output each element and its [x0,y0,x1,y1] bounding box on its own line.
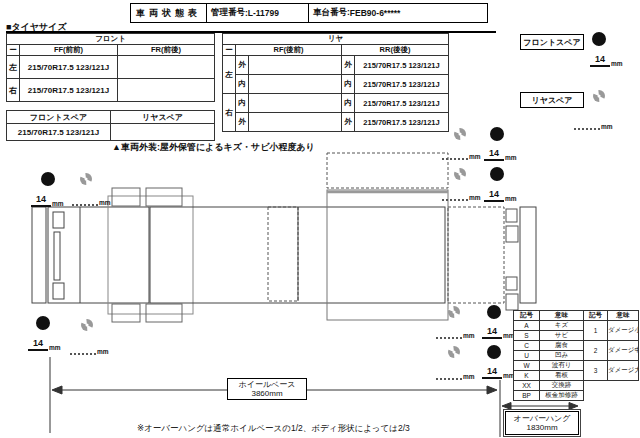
tread-depth-label-empty: mm [70,346,109,355]
tread-depth-label: 14mm [28,339,61,351]
rear-spare-tread-depth-label: mm [574,121,613,130]
wheelbase-label: ホイールベース [239,380,296,389]
legend-header: 意味 [540,311,584,321]
legend-meaning: 凹み [540,351,584,361]
tread-depth-label-empty: mm [72,197,111,206]
tire-icon-rear1-left-inner [448,306,460,318]
tire-icon-front-right-outer [41,172,55,186]
tire-icon-front-right-inner [80,173,92,185]
tread-depth-label: 14mm [482,327,515,339]
overhang-footnote: ※オーバーハングは通常ホイルベースの1/2、ボディ形状によっては2/3 [137,423,410,435]
legend-meaning: ダメージ小 [608,321,639,341]
overhang-label: オーバーハング [514,414,571,423]
tire-icon-rear1-left-outer [487,305,501,319]
tire-icon-rear2-right-inner [454,168,466,180]
tire-icon-front-left-outer [36,316,50,330]
overhang-value: 1830mm [526,423,557,432]
tire-icon-front-left-inner [81,319,93,331]
tire-icon-rear2-left-inner [448,346,460,358]
tread-depth-label-empty: mm [442,151,481,160]
legend-meaning: 腐食 [540,341,584,351]
tread-depth-label-empty: mm [436,371,475,380]
legend-meaning: 交換跡 [540,381,584,391]
tread-depth-label: 14mm [31,195,64,207]
wheelbase-value: 3860mm [251,389,282,398]
tread-depth-label: 14mm [482,367,515,379]
legend-meaning: ダメージ大 [608,361,639,381]
legend-header: 記号 [584,311,608,321]
legend-symbol: 1 [584,321,608,341]
tread-depth-label: 14mm [484,149,517,161]
legend-symbol: W [514,361,540,371]
rear-spare-tire-icon [593,90,605,102]
tread-depth-label-empty: mm [442,192,481,201]
wheelbase-dimension-box: ホイールベース 3860mm [227,378,307,400]
legend-symbol: K [514,371,540,381]
tire-icon-rear2-left-outer [487,345,501,359]
tire-icon-rear1-right-inner [454,128,466,140]
legend-meaning: 看板 [540,371,584,381]
legend-meaning: ダメージ中 [608,341,639,361]
legend-symbol: BP [514,391,540,401]
legend-meaning: 波有り [540,361,584,371]
front-spare-tire-icon [592,32,606,46]
legend-header: 意味 [608,311,639,321]
tread-depth-label-empty: mm [436,330,475,339]
legend-symbol: 3 [584,361,608,381]
legend-symbol: A [514,321,540,331]
damage-legend-table: 記号 意味 記号 意味 A キズ 1 ダメージ小 S サビ C 腐食 2 ダメー… [513,310,639,401]
legend-meaning: サビ [540,331,584,341]
legend-header: 記号 [514,311,540,321]
legend-meaning: 板金加修跡 [540,391,584,401]
legend-symbol: 2 [584,341,608,361]
tire-icon-rear2-right-outer [490,167,504,181]
front-spare-tread-depth-label: 14mm [590,55,623,67]
legend-symbol: XX [514,381,540,391]
vehicle-condition-sheet: 車両状態表 管理番号:L-11799 車台番号:FEB90-6***** ■タイ… [0,0,640,438]
legend-symbol: C [514,341,540,351]
tire-icon-rear1-right-outer [490,127,504,141]
legend-meaning: キズ [540,321,584,331]
tread-depth-label: 14mm [484,190,517,202]
legend-symbol: U [514,351,540,361]
overhang-dimension-box: オーバーハング 1830mm [505,411,579,435]
legend-symbol: S [514,331,540,341]
